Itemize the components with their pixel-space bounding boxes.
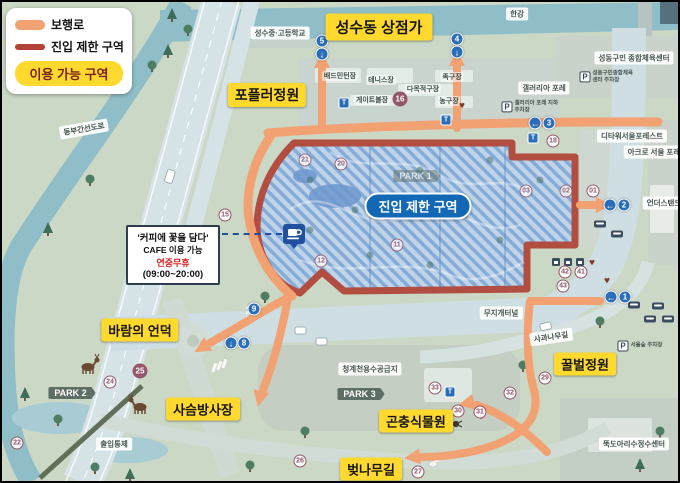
map-badge-16: 16 [393,92,408,107]
map-badge-29: 29 [539,372,552,385]
gate-9-badge: 9 [248,303,261,316]
cafe-callout: '커피에 꽃을 담다' CAFE 이용 가능 연중무휴 (09:00~20:00… [126,225,220,285]
facility-label-0: 배드민턴장 [322,71,358,81]
cafe-open-days: 연중무휴 [129,256,217,269]
restroom-icon-2: T [528,133,539,144]
parking-1: P성동구민종합체육센터 주차장 [580,70,637,83]
facility-label-2: 다목적구장 [405,84,441,94]
map-chip-3: 갤러리아 포레 [518,82,569,95]
map-badge-15: 15 [219,209,232,222]
map-chip-2: 성동구민 종합체육센터 [594,52,673,65]
walkway-swatch [15,20,45,30]
parking-icon: P [502,102,513,113]
bus-stop-icon-1 [611,231,623,238]
park-sign-park-1: PARK 1 [393,170,440,182]
parking-icon: P [580,72,591,83]
photo-spot-heart-icon-1: ♥ [589,258,595,269]
legend-restricted-label: 진입 제한 구역 [51,38,124,55]
map-badge-43: 43 [557,280,570,293]
gate-3-badge: 3 [543,117,556,130]
bus-stop-icon-5 [662,316,674,323]
map-chip-0: 한강 [506,8,528,21]
map-badge-01: 01 [587,185,600,198]
map-badge-26: 26 [294,455,307,468]
parking-icon: P [618,341,629,352]
legend: 보행로 진입 제한 구역 이용 가능 구역 [6,8,132,94]
map-badge-12: 12 [315,255,328,268]
park-sign-park-3: PARK 3 [337,388,384,400]
gate-3-arrow-icon: ← [529,117,542,130]
map-badge-27: 27 [412,466,425,479]
area-label-cherry-road: 벚나무길 [340,458,402,481]
gate-4-arrow-icon: ↓ [451,46,464,59]
restricted-swatch [15,44,45,50]
facility-label-4: 족구장 [440,72,463,82]
map-chip-11: 출입통제 [96,438,132,451]
gate-1-badge: 1 [619,291,632,304]
legend-item-restricted: 진입 제한 구역 [15,38,123,55]
map-badge-42: 42 [559,266,572,279]
area-label-wind-hill: 바람의 언덕 [101,319,178,342]
bus-stop-icon-3 [652,303,664,310]
map-badge-25: 25 [133,364,148,379]
map-badge-24: 24 [104,376,117,389]
kiosk-icon-0 [552,258,560,266]
cafe-availability: CAFE 이용 가능 [129,244,217,256]
map-chip-9: 뚝도아리수정수센터 [599,438,669,451]
area-label-poplar-garden: 포플러정원 [228,83,306,107]
map-badge-22: 22 [11,437,24,450]
facility-label-5: 농구장 [437,96,460,106]
gate-1-arrow-icon: ← [605,291,618,304]
map-badge-33: 33 [429,382,442,395]
cafe-hours: (09:00~20:00) [129,269,217,280]
bus-stop-icon-2 [628,302,640,309]
parking-0: P갤러리아 포레 지하주차장 [502,100,559,113]
park-sign-park-2: PARK 2 [48,387,95,399]
parking-label-text: 갤러리아 포레 지하주차장 [515,100,559,113]
gate-4-badge: 4 [451,33,464,46]
facility-label-3: 게이트볼장 [354,95,390,105]
restricted-zone-label: 진입 제한 구역 [365,193,472,220]
cafe-connector-line [222,233,282,235]
gate-8-arrow-icon: ↓ [225,337,238,350]
legend-walkway-label: 보행로 [51,16,84,33]
map-badge-11: 11 [391,239,404,252]
map-badge-21: 21 [299,154,312,167]
map-badge-30: 30 [452,405,465,418]
parking-label-text: 서울숲 주차장 [631,343,675,350]
cafe-title: '커피에 꽃을 담다' [129,230,217,244]
map-chip-6: 언더스탠드 [643,197,680,210]
legend-item-walkway: 보행로 [15,16,123,33]
area-label-insect-garden: 곤충식물원 [379,410,453,433]
map-chip-7: 무지개터널 [480,307,523,320]
map-chip-4: 디타워서울포레스트 [597,130,667,143]
restroom-icon-0: T [339,98,350,109]
available-area-label: 이용 가능 구역 [15,61,123,86]
bus-stop-icon-4 [644,316,656,323]
map-badge-03: 03 [520,185,533,198]
photo-spot-heart-icon-2: ♥ [604,276,610,287]
map-chip-10: 청계천용수공급지 [338,363,401,376]
gate-2-arrow-icon: ← [604,199,617,212]
parking-2: P서울숲 주차장 [618,341,675,352]
area-label-deer-field: 사슴방사장 [166,398,240,421]
gate-2-badge: 2 [618,199,631,212]
cafe-cup-icon [283,224,305,244]
area-label-bee-garden: 꿀벌정원 [554,353,616,376]
gate-5-arrow-icon: ↓ [316,48,329,61]
photo-spot-heart-icon-0: ♥ [459,101,465,112]
map-badge-20: 20 [335,158,348,171]
map-badge-18: 18 [547,135,560,148]
bus-stop-icon-0 [594,221,606,228]
facility-label-1: 테니스장 [366,75,396,85]
parking-label-text: 성동구민종합체육센터 주차장 [593,70,637,83]
restroom-icon-3: T [445,387,456,398]
map-badge-41: 41 [575,266,588,279]
area-label-seongsu-shops: 성수동 상점가 [326,14,433,41]
map-badge-32: 32 [504,387,517,400]
seoul-forest-map: 성수동 상점가포플러정원바람의 언덕사슴방사장곤충식물원벚나무길꿀벌정원한강성수… [0,0,680,483]
map-chip-1: 성수중·고등학교 [251,27,310,40]
restroom-icon-1: T [441,115,452,126]
gate-8-badge: 8 [238,337,251,350]
map-chip-5: 아크로 서울 포레 [624,146,680,159]
map-badge-31: 31 [474,406,487,419]
map-badge-02: 02 [560,185,573,198]
